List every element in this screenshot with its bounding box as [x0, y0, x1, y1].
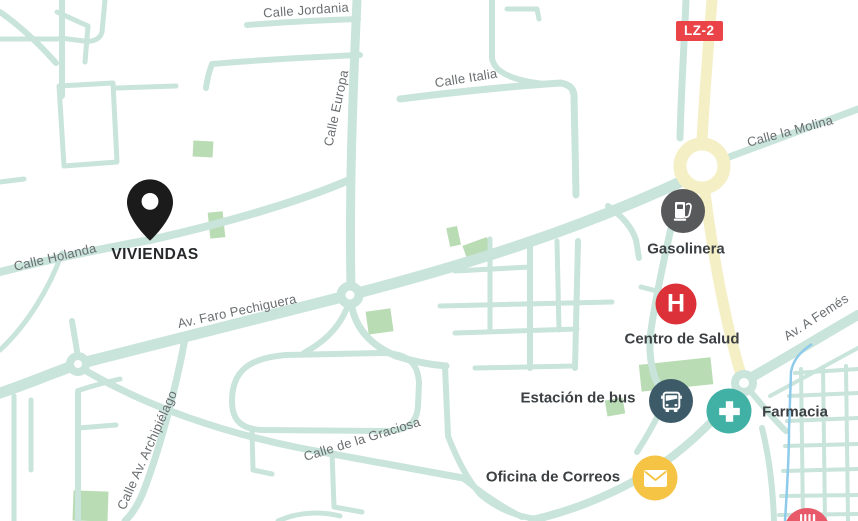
hospital-h-icon: H — [667, 292, 685, 317]
street-grid — [762, 366, 858, 521]
map-pin-icon — [127, 179, 173, 241]
road-calle-europa — [350, 0, 357, 288]
park — [193, 140, 214, 157]
poi-label-centro-de-salud: Centro de Salud — [624, 331, 739, 348]
route-badge-lz2: LZ-2 — [676, 21, 723, 41]
map-canvas[interactable]: Calle Jordania Calle Italia Calle Europa… — [0, 0, 858, 521]
farmacia-marker[interactable] — [707, 389, 752, 434]
gasolinera-marker[interactable] — [661, 189, 705, 233]
estacion-de-bus-marker[interactable] — [649, 379, 693, 423]
fuel-pump-icon — [671, 199, 695, 223]
pharmacy-cross-icon — [716, 398, 742, 424]
poi-label-gasolinera: Gasolinera — [647, 241, 725, 258]
poi-label-farmacia: Farmacia — [762, 404, 828, 421]
centro-de-salud-marker[interactable]: H — [656, 284, 697, 325]
roundabout — [341, 286, 359, 304]
roundabout — [70, 356, 86, 372]
viviendas-pin-marker[interactable] — [127, 179, 173, 246]
road-calle-italia — [400, 83, 576, 195]
fork-knife-icon — [795, 512, 819, 521]
poi-label-oficina-de-correos: Oficina de Correos — [486, 469, 620, 486]
roundabout-lz2 — [680, 144, 724, 188]
park — [366, 308, 394, 334]
poi-label-viviendas: VIVIENDAS — [111, 246, 198, 264]
poi-label-estacion-de-bus: Estación de bus — [520, 390, 635, 407]
bus-icon — [659, 389, 684, 414]
envelope-icon — [643, 469, 667, 487]
park — [446, 226, 461, 247]
oficina-de-correos-marker[interactable] — [633, 456, 678, 501]
